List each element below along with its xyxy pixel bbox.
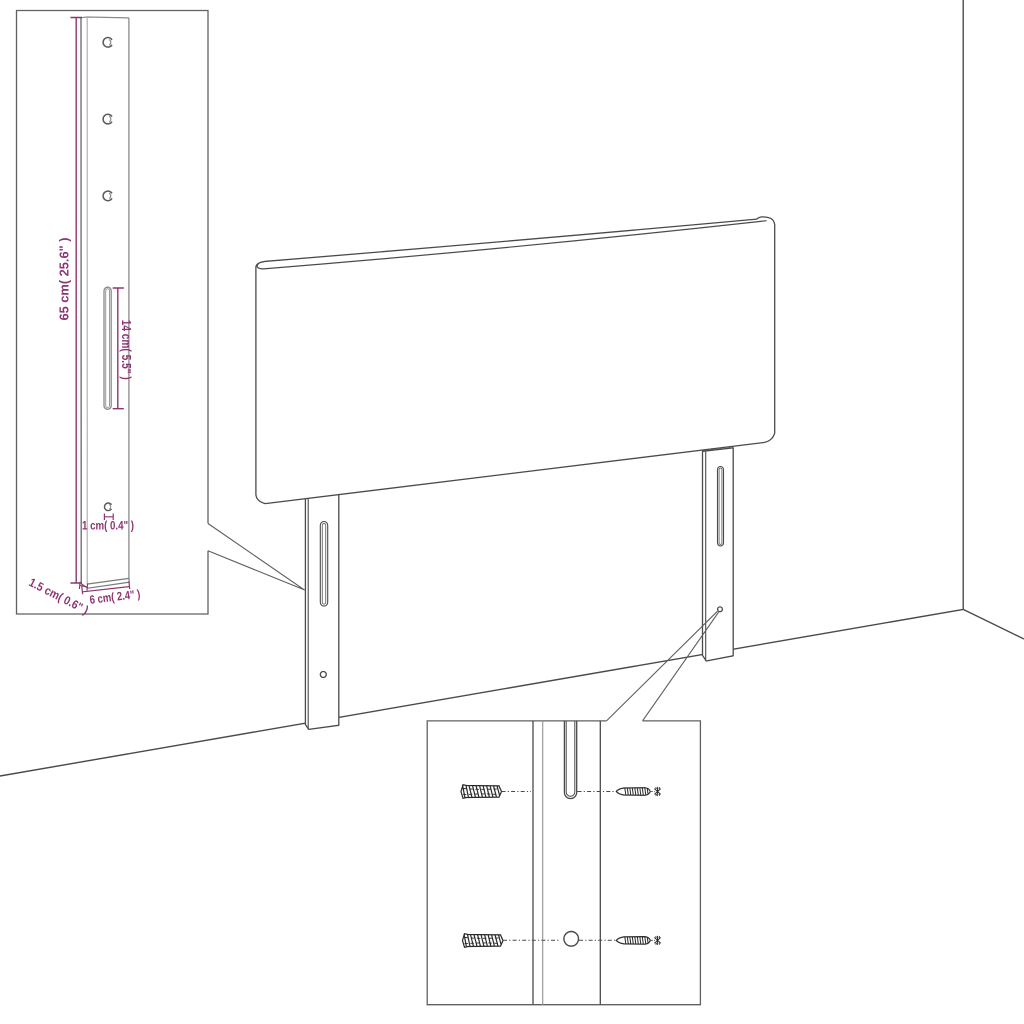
svg-text:1 cm( 0.4" ): 1 cm( 0.4" )	[82, 519, 134, 533]
svg-text:65 cm( 25.6" ): 65 cm( 25.6" )	[56, 238, 71, 321]
svg-text:14 cm( 5.5" ): 14 cm( 5.5" )	[119, 320, 134, 380]
